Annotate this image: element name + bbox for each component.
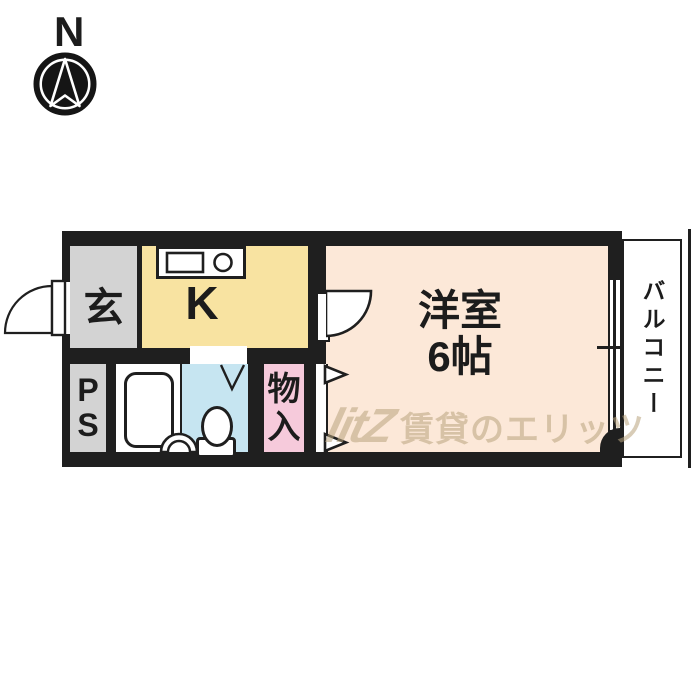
room-closet: 物 入 bbox=[264, 364, 304, 452]
kitchen-label: K bbox=[142, 276, 262, 330]
room-pipe-space: P S bbox=[70, 364, 106, 452]
north-arrow-icon bbox=[33, 52, 97, 116]
sliding-door-arrow-icons bbox=[316, 360, 352, 456]
balcony-railing bbox=[688, 229, 691, 468]
washroom-door-opening bbox=[190, 346, 247, 366]
north-label: N bbox=[54, 8, 85, 56]
toilet-icon bbox=[201, 406, 233, 447]
balcony: バルコニー bbox=[622, 239, 682, 458]
window-center-line bbox=[613, 280, 616, 430]
folding-door-icon bbox=[218, 364, 248, 392]
stove-icon bbox=[156, 246, 246, 279]
entrance-door-swing-icon bbox=[0, 278, 72, 340]
room-entrance: 玄 bbox=[70, 246, 137, 348]
washbasin-icon bbox=[158, 430, 200, 452]
floorplan-page: N 玄 K 洋室 6帖 P S 物 入 bbox=[0, 0, 700, 700]
western-room-label: 洋室 6帖 bbox=[360, 288, 560, 380]
door-swing-icon bbox=[326, 288, 378, 342]
balcony-label: バルコニー bbox=[635, 279, 669, 419]
entrance-label: 玄 bbox=[84, 275, 124, 333]
